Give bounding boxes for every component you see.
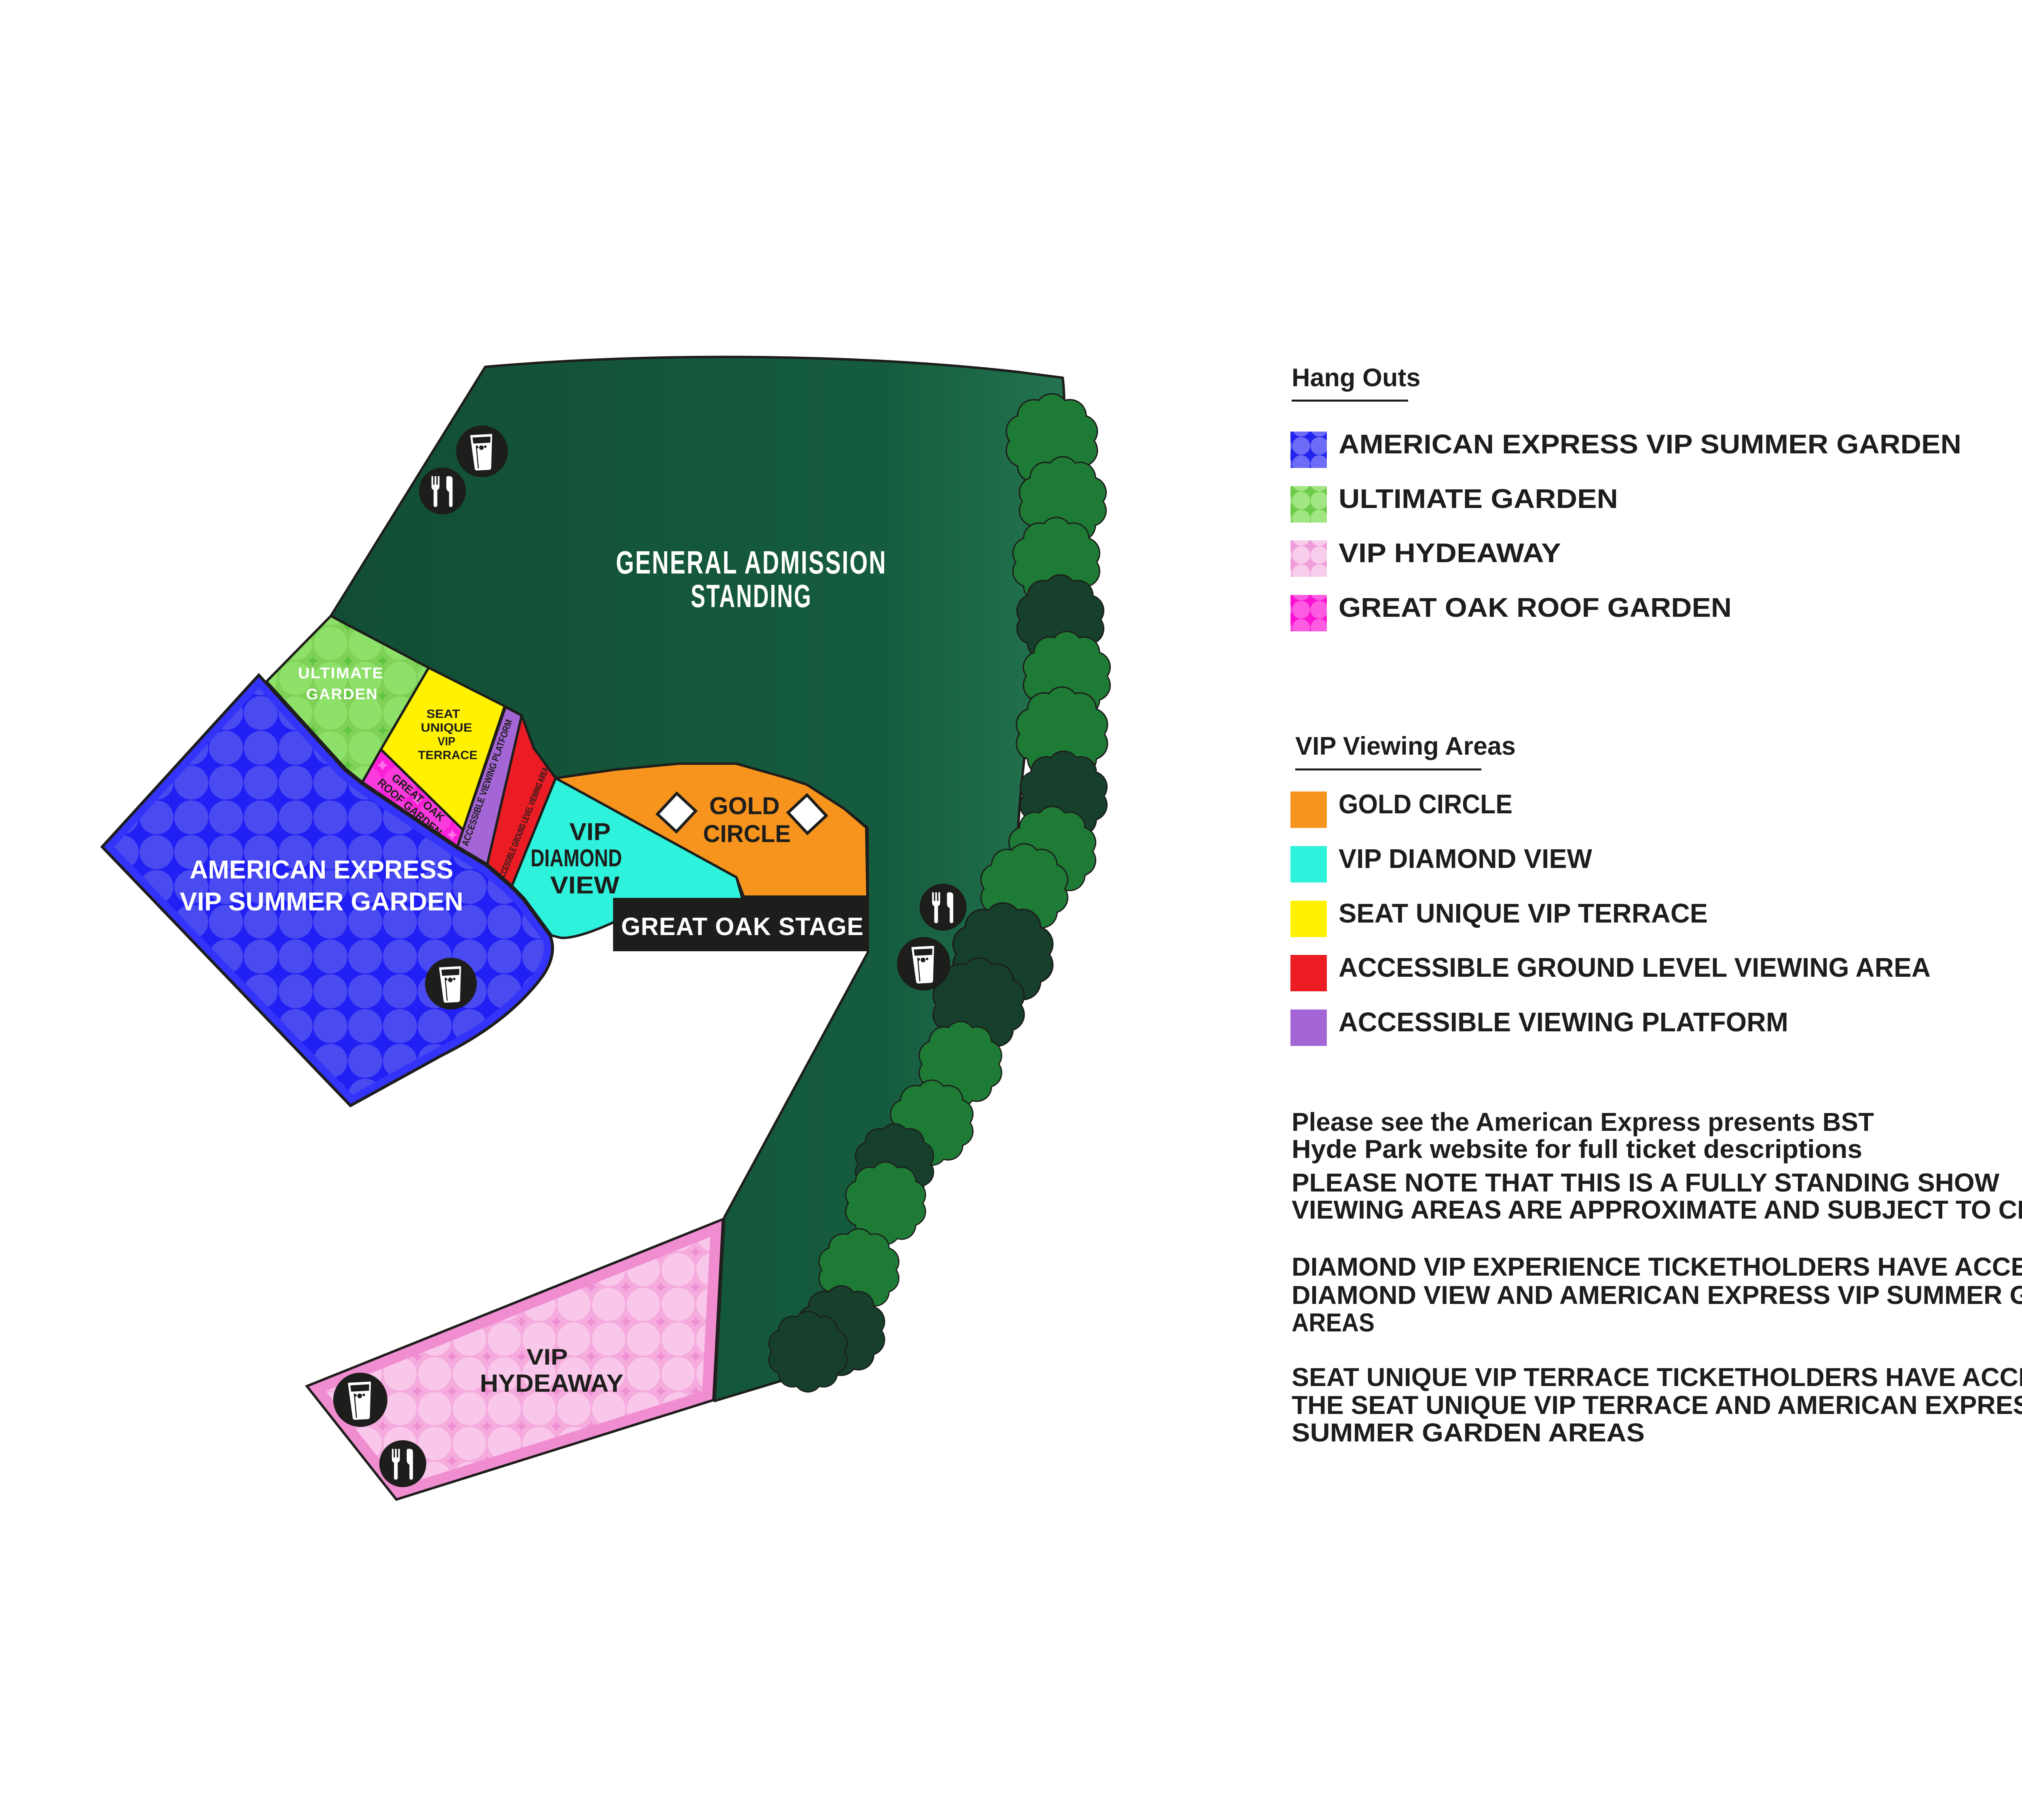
svg-text:TERRACE: TERRACE [418,749,478,762]
svg-text:ULTIMATE GARDEN: ULTIMATE GARDEN [1339,484,1618,514]
svg-text:UNIQUE: UNIQUE [421,721,472,734]
svg-text:Hang Outs: Hang Outs [1292,364,1421,392]
svg-text:DIAMOND VIP EXPERIENCE TICKETH: DIAMOND VIP EXPERIENCE TICKETHOLDERS HAV… [1292,1252,2022,1281]
svg-text:CIRCLE: CIRCLE [703,820,791,847]
svg-text:ULTIMATE: ULTIMATE [298,665,384,682]
svg-text:AMERICAN EXPRESS VIP SUMMER GA: AMERICAN EXPRESS VIP SUMMER GARDEN [1339,429,1961,459]
svg-text:SEAT: SEAT [427,707,460,721]
svg-text:GOLD CIRCLE: GOLD CIRCLE [1339,789,1512,819]
svg-text:VIP SUMMER GARDEN: VIP SUMMER GARDEN [180,887,463,916]
svg-text:GREAT OAK ROOF GARDEN: GREAT OAK ROOF GARDEN [1339,593,1732,623]
svg-text:SEAT UNIQUE VIP TERRACE: SEAT UNIQUE VIP TERRACE [1339,898,1708,929]
svg-text:VIP: VIP [569,818,611,845]
svg-text:VIEW: VIEW [550,872,620,899]
svg-text:Please see the American Expres: Please see the American Express presents… [1292,1107,1874,1136]
svg-text:PLEASE NOTE THAT THIS IS A FUL: PLEASE NOTE THAT THIS IS A FULLY STANDIN… [1292,1168,2000,1197]
svg-text:STANDING: STANDING [691,578,812,614]
svg-text:AMERICAN EXPRESS: AMERICAN EXPRESS [190,855,453,884]
svg-text:GARDEN: GARDEN [306,686,378,703]
svg-text:VIP DIAMOND VIEW: VIP DIAMOND VIEW [1339,844,1593,874]
svg-text:DIAMOND: DIAMOND [531,844,622,872]
svg-text:HYDEAWAY: HYDEAWAY [480,1369,624,1397]
svg-text:AREAS: AREAS [1292,1308,1375,1337]
svg-text:VIP: VIP [438,735,455,748]
svg-text:GOLD: GOLD [709,792,780,819]
svg-text:SEAT UNIQUE VIP TERRACE TICKET: SEAT UNIQUE VIP TERRACE TICKETHOLDERS HA… [1292,1363,2022,1392]
svg-text:GENERAL ADMISSION: GENERAL ADMISSION [616,544,887,580]
svg-text:GREAT OAK STAGE: GREAT OAK STAGE [621,913,864,941]
svg-text:THE SEAT UNIQUE VIP TERRACE AN: THE SEAT UNIQUE VIP TERRACE AND AMERICAN… [1292,1390,2022,1420]
svg-text:Hyde Park website for full tic: Hyde Park website for full ticket descri… [1292,1134,1862,1164]
svg-text:DIAMOND VIEW AND AMERICAN EXPR: DIAMOND VIEW AND AMERICAN EXPRESS VIP SU… [1292,1280,2022,1310]
svg-text:VIP: VIP [527,1344,568,1369]
svg-text:ACCESSIBLE GROUND LEVEL VIEWIN: ACCESSIBLE GROUND LEVEL VIEWING AREA [1339,952,1931,983]
svg-text:VIP Viewing Areas: VIP Viewing Areas [1295,732,1516,760]
svg-text:ACCESSIBLE VIEWING PLATFORM: ACCESSIBLE VIEWING PLATFORM [1339,1007,1788,1037]
svg-text:VIP HYDEAWAY: VIP HYDEAWAY [1339,538,1561,568]
svg-text:VIEWING AREAS ARE APPROXIMATE: VIEWING AREAS ARE APPROXIMATE AND SUBJEC… [1292,1195,2022,1224]
svg-text:SUMMER GARDEN AREAS: SUMMER GARDEN AREAS [1292,1418,1645,1447]
